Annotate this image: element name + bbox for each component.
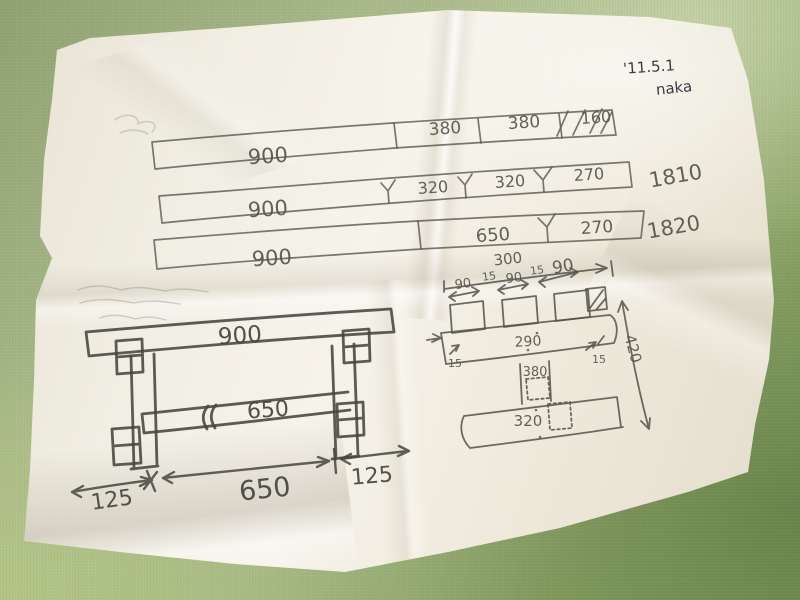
bench-elevation: 900 650 [86,309,394,469]
detail-dot-3 [535,409,538,412]
bar1-seg2-label: 380 [428,118,462,140]
bar3-seg3-label: 270 [580,217,614,239]
bench-stretcher [142,392,350,433]
detail-mortise-upper [526,377,550,400]
sketch-drawing: 900 380 380 160 900 320 320 270 1810 900… [0,0,800,600]
bench-base-dimensions: 125 650 125 [72,446,409,516]
detail-overall-width-label: 300 [493,249,523,270]
note-name: naka [655,77,693,99]
cut-bar-1: 900 380 380 160 [152,107,616,169]
bar2-total-label: 1810 [647,160,704,193]
bench-stretcher-label: 650 [246,397,290,425]
faint-scribbles [78,115,208,320]
dim-left-label: 125 [89,485,134,516]
bar3-y-mark [538,214,555,242]
bar1-seg3-label: 380 [507,112,541,134]
detail-height-label: 420 [621,333,646,365]
detail-dim-90c-label: 90 [551,255,576,278]
bar3-seg2-label: 650 [475,224,511,247]
bench-left-leg-blocks [112,339,143,465]
cut-bar-2: 900 320 320 270 1810 [159,160,704,223]
detail-inset-left-label: 15 [448,357,462,370]
detail-dim-90a-label: 90 [454,276,472,293]
bar1-seg1-label: 900 [247,143,289,170]
detail-inset-right-label: 15 [592,353,606,366]
bar3-seg1-label: 900 [251,245,293,272]
dim-center-label: 650 [238,471,293,507]
detail-dim-90b-label: 90 [505,270,523,287]
dim-right-arrow [341,446,409,464]
detail-dim-15a-label: 15 [481,269,497,284]
bar2-seg2-label: 320 [417,177,449,198]
bench-top-label: 900 [217,322,263,351]
bench-right-leg-blocks [337,329,370,437]
bar1-seg4-label: 160 [580,107,612,128]
bar2-seg3-label: 320 [494,171,526,192]
detail-mid-rail-label: 290 [514,333,542,350]
cut-bar-3: 900 650 270 1820 [154,211,702,272]
detail-post-label: 380 [523,365,548,380]
detail-dim-15b-label: 15 [529,263,545,278]
detail-mortise-lower [548,402,572,430]
photo-scene: 900 380 380 160 900 320 320 270 1810 900… [0,0,800,600]
joint-detail: 300 90 15 90 15 90 290 15 15 380 320 420 [427,249,650,448]
bar3-divider [418,221,421,249]
detail-dot-4 [539,436,542,439]
handwritten-note: '11.5.1 naka [623,56,693,99]
detail-height-arrow [618,301,650,429]
bar2-seg4-label: 270 [573,164,605,185]
note-date: '11.5.1 [623,56,676,78]
dim-right-label: 125 [350,462,394,491]
bar2-seg1-label: 900 [247,196,289,223]
scribble-mid-left [78,286,208,320]
detail-bottom-rail-label: 320 [514,412,543,430]
scribble-top-left [115,115,155,134]
bar1-outline [152,110,616,169]
bar3-total-label: 1820 [645,211,702,244]
detail-posts [450,290,590,333]
